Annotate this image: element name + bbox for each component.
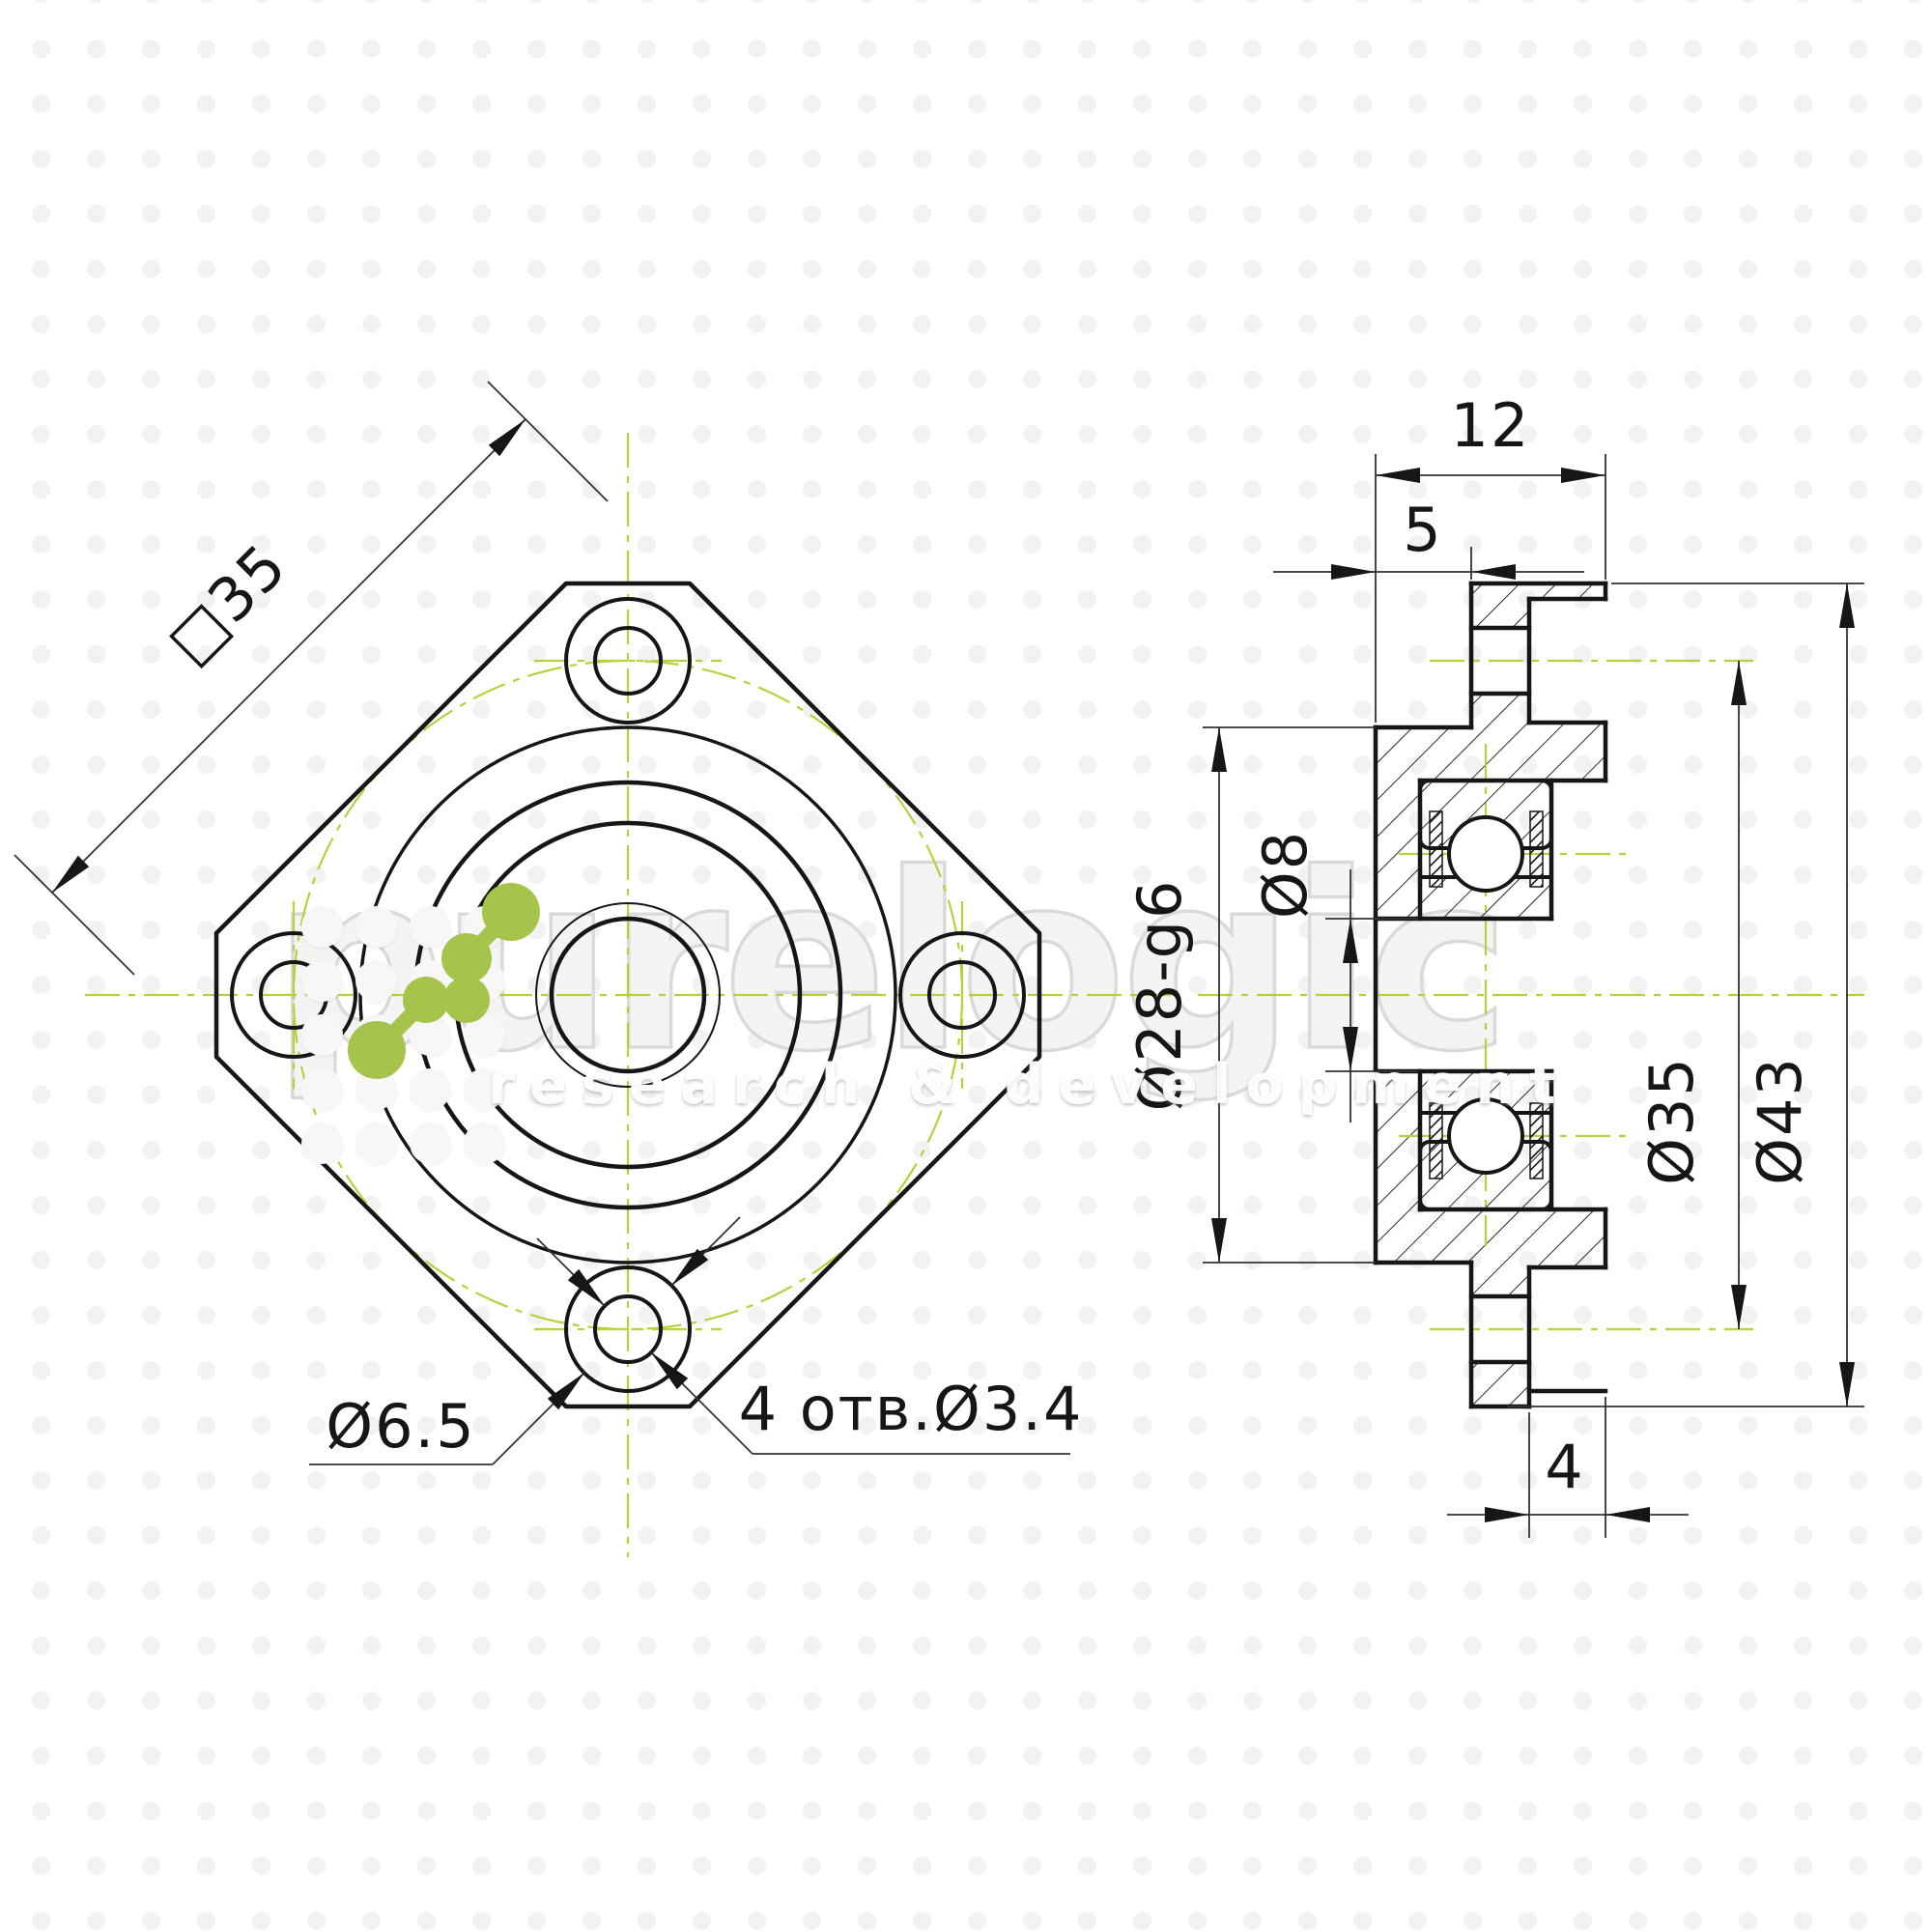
arrowhead: [1485, 1507, 1529, 1522]
arrowhead: [52, 856, 89, 893]
arrowhead: [1343, 919, 1358, 963]
bolt-circle-label: Ø35: [1636, 1056, 1707, 1185]
bearing-ball: [1449, 817, 1522, 891]
dim-counterbore: Ø6.5: [309, 1217, 740, 1464]
flange-dim-label: Ø43: [1745, 1056, 1815, 1185]
watermark-dot-logo: [301, 906, 518, 1177]
arrowhead: [1731, 1285, 1747, 1329]
boss-length-label: 5: [1403, 495, 1442, 565]
ear-thickness-label: 4: [1545, 1432, 1584, 1502]
holes-note-label: 4 отв.Ø3.4: [739, 1374, 1084, 1444]
arrowhead: [1471, 564, 1516, 580]
dim-holes-note: 4 отв.Ø3.4: [537, 1238, 1083, 1454]
arrowhead: [1839, 583, 1855, 628]
arrowhead: [489, 419, 526, 456]
arrowhead: [1561, 468, 1605, 483]
arrowhead: [1605, 1507, 1650, 1522]
drawing-sheet: purelogic: [0, 0, 1932, 1932]
arrowhead: [1211, 1218, 1227, 1263]
dim-ear-4: 4: [1447, 1397, 1689, 1538]
technical-drawing: □35 Ø6.5: [0, 0, 1932, 1932]
counterbore-dim-label: Ø6.5: [326, 1391, 475, 1462]
arrowhead: [1211, 727, 1227, 772]
section-view: 12 5 Ø28-g6: [1124, 390, 1864, 1538]
watermark-tagline: research & development: [488, 1053, 1319, 1117]
front-view: □35 Ø6.5: [14, 382, 1171, 1557]
arrowhead: [1839, 1362, 1855, 1406]
square-dim-label: □35: [153, 529, 300, 677]
arrowhead: [1376, 468, 1420, 483]
bearing-shield: [1530, 811, 1543, 887]
arrowhead: [1331, 564, 1376, 580]
arrowhead: [1731, 661, 1747, 705]
dim-boss-length-5: 5: [1273, 495, 1584, 580]
bearing-shield: [1430, 811, 1442, 887]
bore-dim-label: Ø8: [1250, 830, 1321, 919]
width-dim-label: 12: [1451, 390, 1531, 461]
